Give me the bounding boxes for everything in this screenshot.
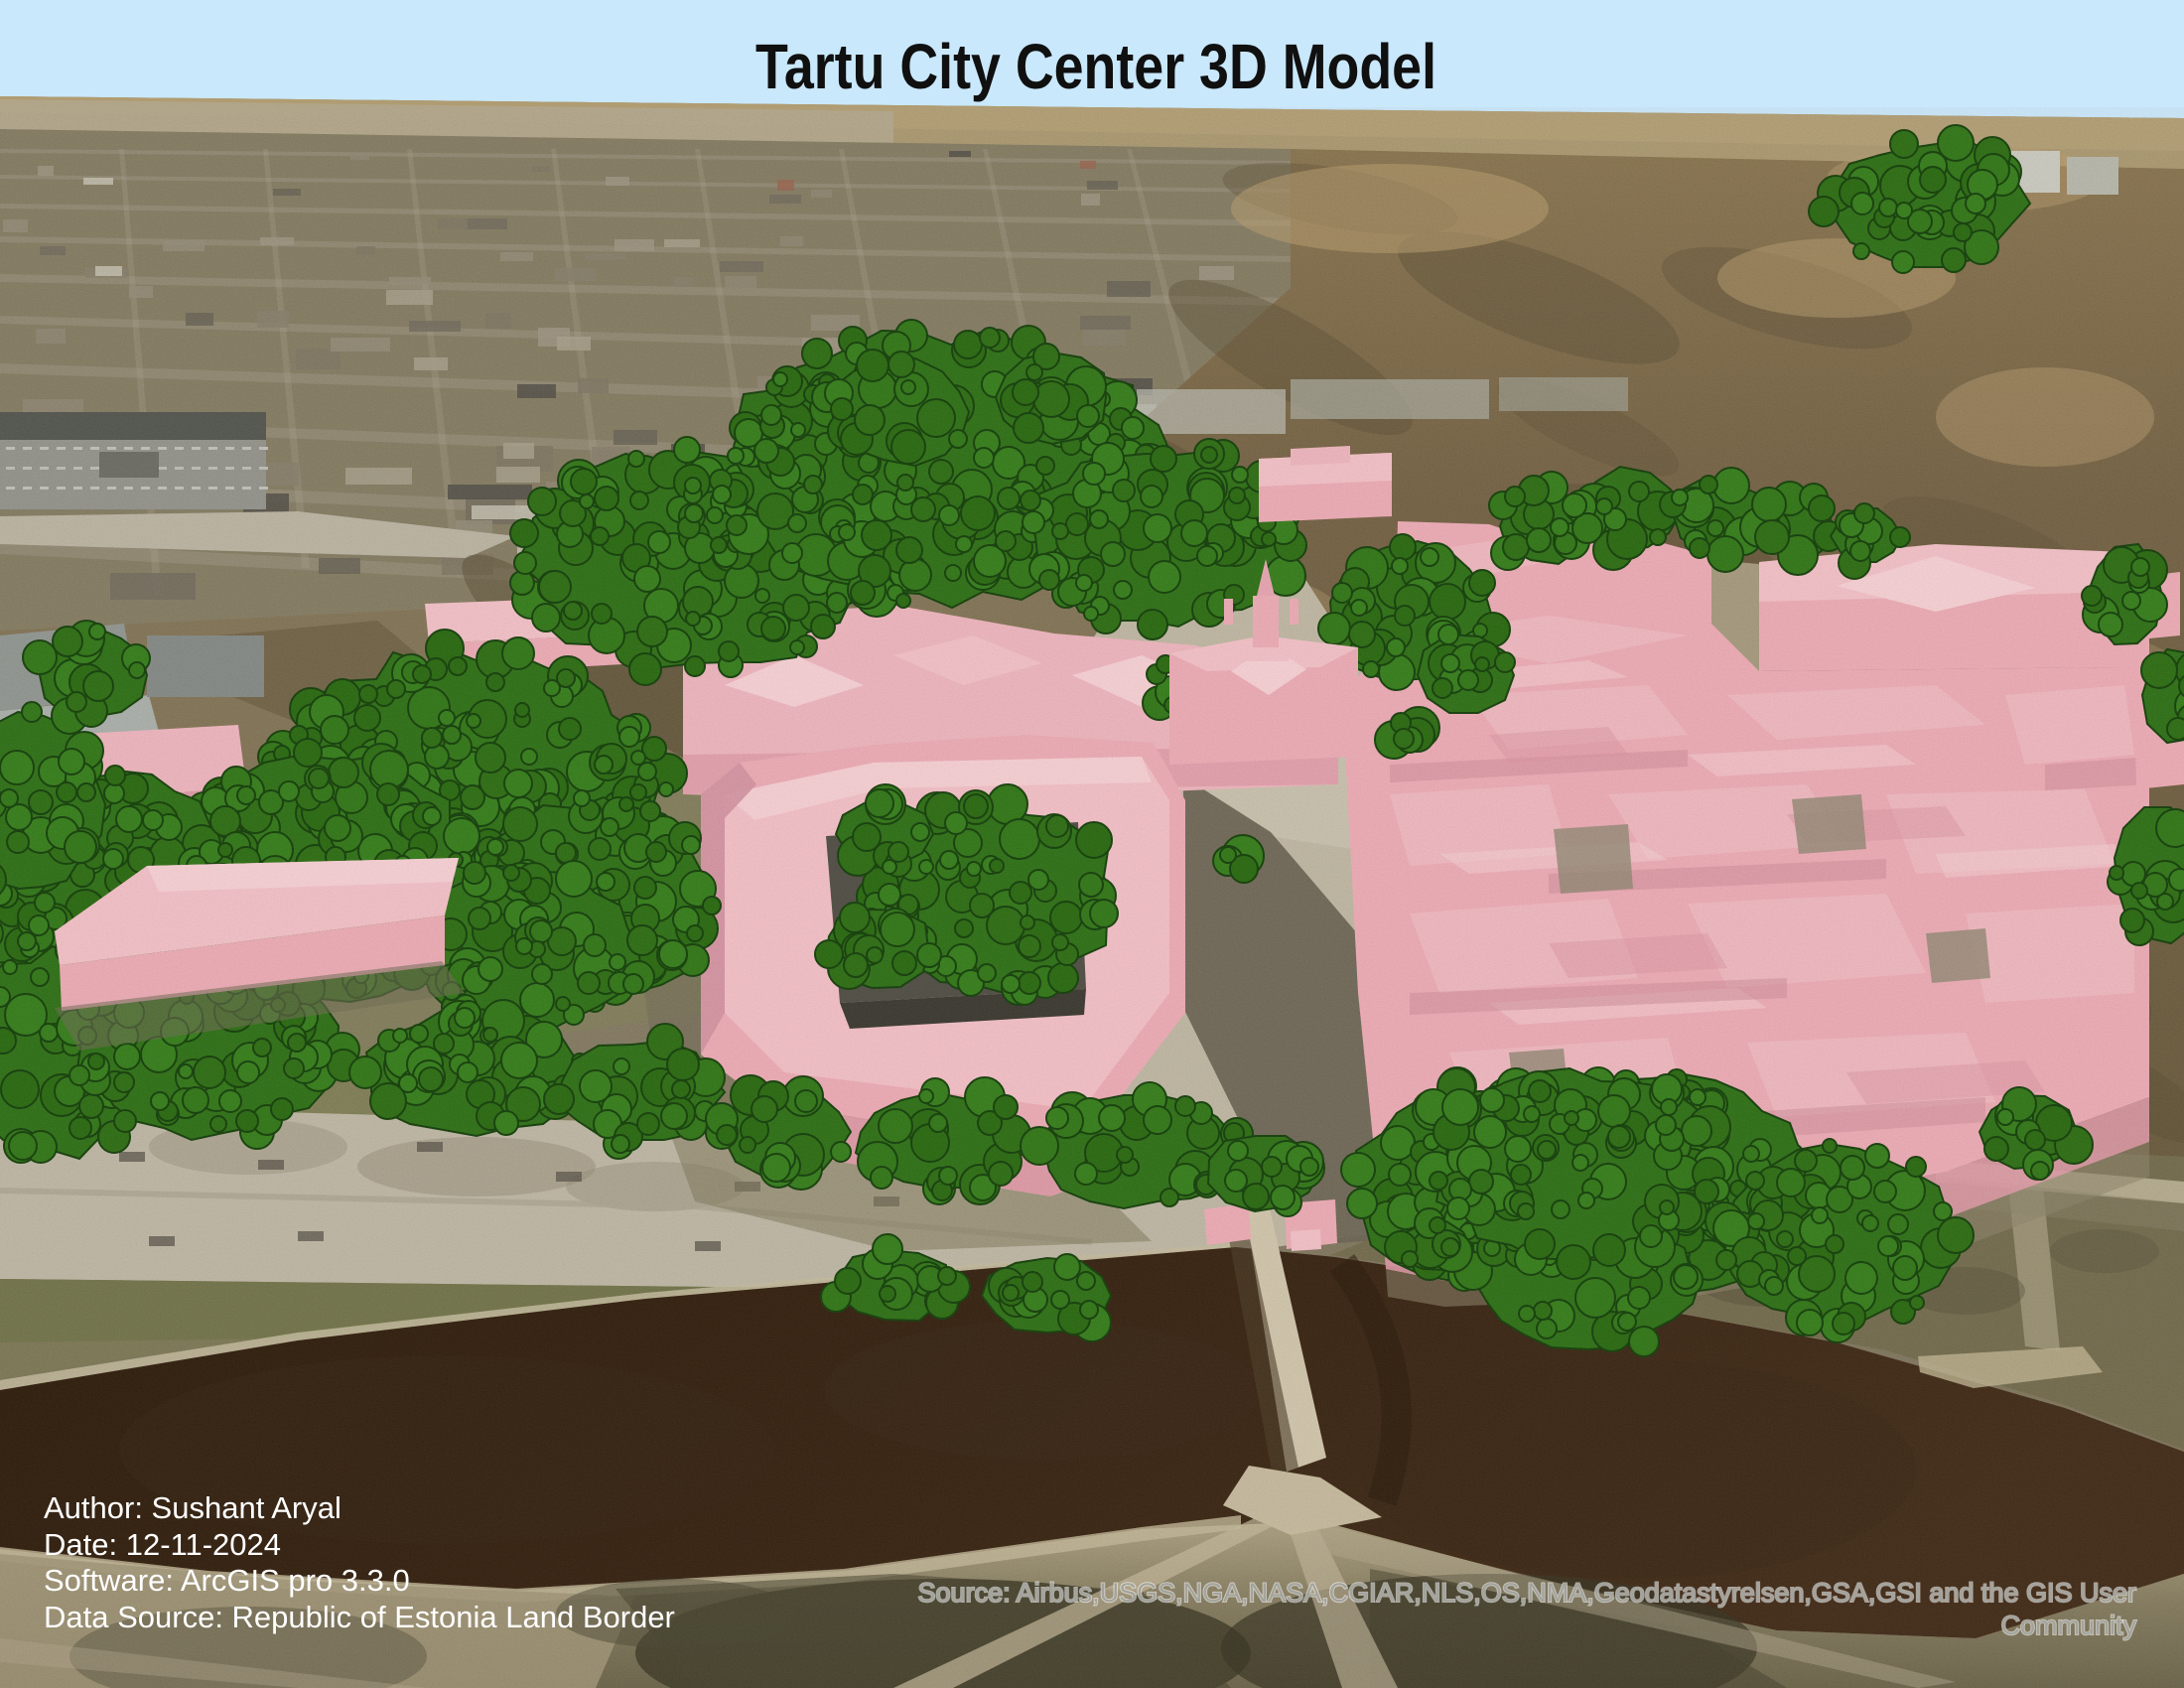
svg-text:Date: 12-11-2024: Date: 12-11-2024 (44, 1527, 281, 1562)
svg-text:Software: ArcGIS pro 3.3.0: Software: ArcGIS pro 3.3.0 (44, 1563, 410, 1598)
svg-text:Community: Community (2000, 1611, 2136, 1640)
svg-text:Tartu City Center 3D Model: Tartu City Center 3D Model (755, 31, 1436, 102)
svg-text:Author: Sushant Aryal: Author: Sushant Aryal (44, 1490, 341, 1525)
svg-text:Data Source: Republic of Eston: Data Source: Republic of Estonia Land Bo… (44, 1600, 675, 1634)
svg-text:Source: Airbus,USGS,NGA,NASA,C: Source: Airbus,USGS,NGA,NASA,CGIAR,NLS,O… (918, 1578, 2136, 1608)
